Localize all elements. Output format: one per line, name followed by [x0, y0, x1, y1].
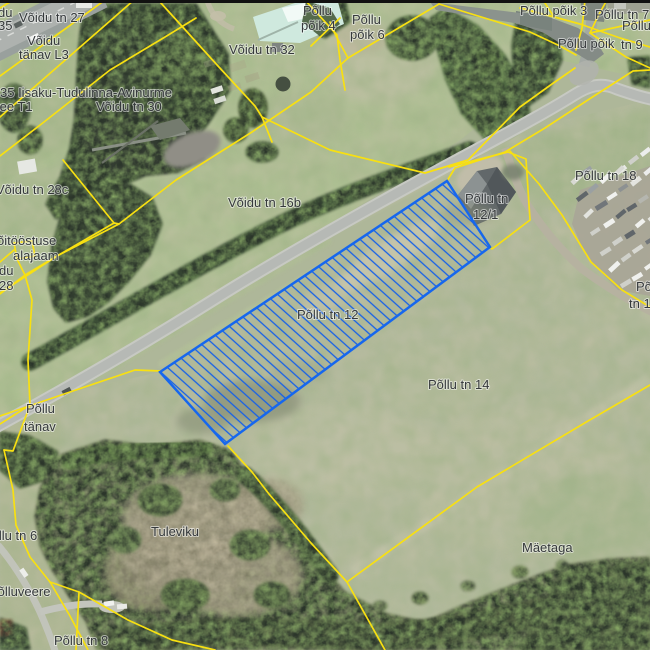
svg-text:35 Iisaku-Tudulinna-Avinurme: 35 Iisaku-Tudulinna-Avinurme: [0, 85, 172, 100]
svg-text:Põllu: Põllu: [26, 401, 55, 416]
svg-text:Põllu tn 8: Põllu tn 8: [54, 633, 108, 648]
svg-text:tänav: tänav: [24, 419, 56, 434]
svg-text:tänav L3: tänav L3: [19, 47, 69, 62]
svg-text:põik 4: põik 4: [301, 18, 336, 33]
svg-text:Põllu: Põllu: [303, 3, 332, 18]
svg-text:alajaam: alajaam: [13, 248, 59, 263]
svg-text:28: 28: [0, 278, 13, 293]
svg-text:Võidu tn 32: Võidu tn 32: [229, 42, 295, 57]
svg-text:Võidu tn 30: Võidu tn 30: [96, 99, 162, 114]
svg-text:Mäetaga: Mäetaga: [522, 540, 573, 555]
svg-text:Põllu tn 14: Põllu tn 14: [428, 377, 489, 392]
svg-text:Põllu: Põllu: [622, 18, 650, 33]
svg-text:põik 6: põik 6: [350, 27, 385, 42]
svg-text:Tuleviku: Tuleviku: [151, 524, 199, 539]
svg-text:Võidu tn 27: Võidu tn 27: [19, 10, 85, 25]
svg-text:Põlluveere: Põlluveere: [0, 584, 50, 599]
svg-text:Põllu tn: Põllu tn: [465, 191, 508, 206]
svg-text:õitööstuse: õitööstuse: [0, 233, 56, 248]
svg-text:Võidu: Võidu: [27, 33, 60, 48]
svg-text:35: 35: [0, 18, 12, 33]
svg-text:Põllu tn 18: Põllu tn 18: [575, 168, 636, 183]
svg-text:tn 18: tn 18: [629, 296, 650, 311]
svg-text:Põllu põik: Põllu põik: [558, 36, 615, 51]
svg-text:Põllu: Põllu: [352, 12, 381, 27]
svg-text:tn 9: tn 9: [621, 37, 643, 52]
svg-text:du: du: [0, 263, 13, 278]
svg-text:Põllu tn 6: Põllu tn 6: [0, 528, 37, 543]
svg-text:Võidu tn 16b: Võidu tn 16b: [228, 195, 301, 210]
svg-text:tee T1: tee T1: [0, 99, 33, 114]
svg-text:Põllu: Põllu: [636, 279, 650, 294]
svg-text:Põllu tn 12: Põllu tn 12: [297, 307, 358, 322]
svg-text:Põllu põik 3: Põllu põik 3: [520, 3, 587, 18]
svg-text:12/1: 12/1: [473, 207, 498, 222]
svg-text:Võidu tn 28c: Võidu tn 28c: [0, 182, 69, 197]
